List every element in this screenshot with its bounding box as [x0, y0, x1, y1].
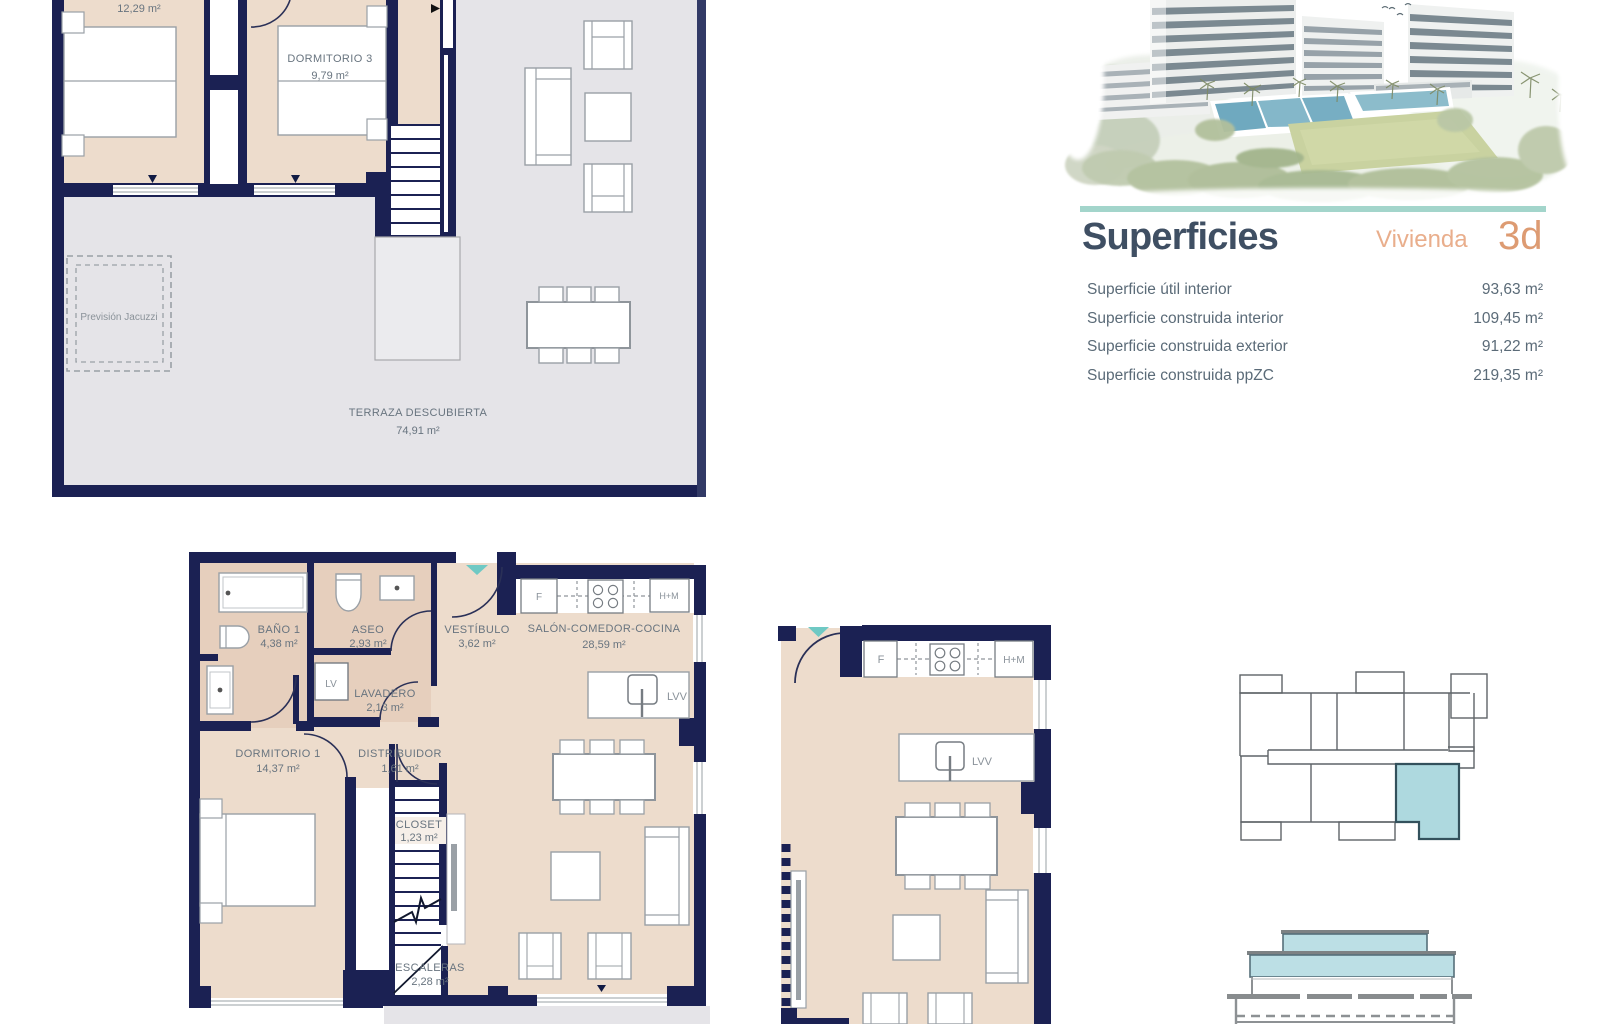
svg-text:Superficies: Superficies	[1082, 216, 1278, 258]
svg-text:ASEO: ASEO	[352, 624, 384, 636]
svg-text:ESCALERAS: ESCALERAS	[395, 962, 465, 974]
svg-text:LVV: LVV	[972, 756, 993, 768]
svg-text:DISTRIBUIDOR: DISTRIBUIDOR	[358, 748, 442, 760]
svg-text:LAVADERO: LAVADERO	[354, 688, 416, 700]
svg-text:14,37 m²: 14,37 m²	[256, 763, 300, 775]
svg-text:Superficie construida exterior: Superficie construida exterior	[1087, 338, 1288, 355]
svg-text:VESTÍBULO: VESTÍBULO	[444, 623, 509, 636]
svg-text:SALÓN-COMEDOR-COCINA: SALÓN-COMEDOR-COCINA	[528, 622, 681, 635]
svg-text:F: F	[536, 592, 542, 603]
svg-text:91,22 m²: 91,22 m²	[1482, 338, 1543, 355]
svg-text:BAÑO 1: BAÑO 1	[258, 623, 301, 636]
svg-text:DORMITORIO 3: DORMITORIO 3	[287, 53, 372, 65]
svg-text:Vivienda: Vivienda	[1376, 226, 1468, 253]
svg-text:2,28 m²: 2,28 m²	[411, 976, 449, 988]
svg-text:93,63 m²: 93,63 m²	[1482, 281, 1543, 298]
svg-text:LV: LV	[325, 679, 337, 690]
svg-text:LVV: LVV	[667, 691, 688, 703]
svg-text:TERRAZA DESCUBIERTA: TERRAZA DESCUBIERTA	[349, 407, 488, 419]
svg-text:2,13 m²: 2,13 m²	[366, 702, 404, 714]
svg-text:H+M: H+M	[1003, 655, 1024, 666]
svg-text:4,38 m²: 4,38 m²	[260, 638, 298, 650]
svg-text:3,62 m²: 3,62 m²	[458, 638, 496, 650]
svg-text:H+M: H+M	[659, 591, 678, 601]
svg-text:Superficie construida interior: Superficie construida interior	[1087, 310, 1283, 327]
svg-text:109,45 m²: 109,45 m²	[1473, 310, 1543, 327]
svg-text:28,59 m²: 28,59 m²	[582, 639, 626, 651]
svg-text:CLOSET: CLOSET	[396, 819, 442, 831]
svg-text:Previsión Jacuzzi: Previsión Jacuzzi	[80, 312, 157, 323]
svg-text:F: F	[878, 654, 885, 666]
svg-text:Superficie útil interior: Superficie útil interior	[1087, 281, 1232, 298]
svg-text:1,61 m²: 1,61 m²	[381, 763, 419, 775]
svg-text:74,91 m²: 74,91 m²	[396, 425, 440, 437]
svg-text:Superficie construida ppZC: Superficie construida ppZC	[1087, 367, 1274, 384]
svg-text:2,93 m²: 2,93 m²	[349, 638, 387, 650]
svg-text:DORMITORIO 1: DORMITORIO 1	[235, 748, 320, 760]
svg-text:9,79 m²: 9,79 m²	[311, 70, 349, 82]
svg-text:12,29 m²: 12,29 m²	[117, 3, 161, 15]
svg-text:3d: 3d	[1498, 214, 1543, 258]
svg-text:1,23 m²: 1,23 m²	[400, 832, 438, 844]
svg-text:219,35 m²: 219,35 m²	[1473, 367, 1543, 384]
